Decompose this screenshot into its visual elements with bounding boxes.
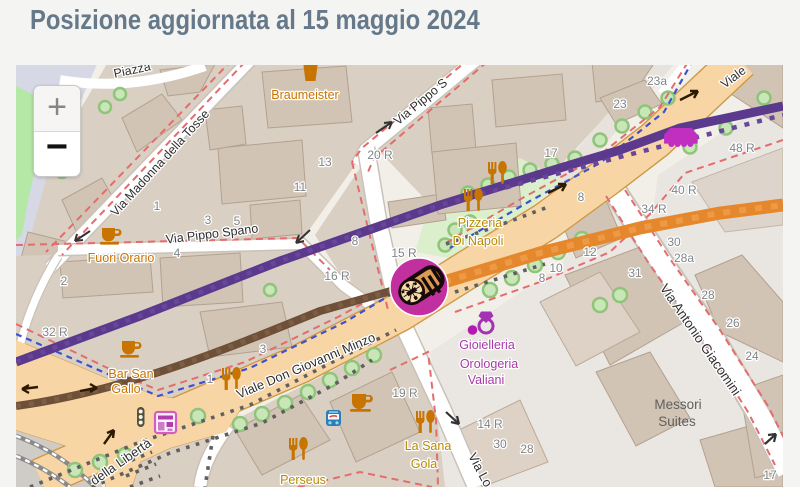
svg-text:20 R: 20 R [367, 148, 393, 162]
svg-text:16 R: 16 R [324, 269, 350, 283]
svg-text:28a: 28a [674, 251, 694, 265]
svg-text:Gallo: Gallo [111, 382, 140, 396]
svg-text:3: 3 [205, 213, 212, 227]
svg-text:31: 31 [628, 266, 642, 280]
svg-text:8: 8 [352, 234, 359, 248]
svg-text:Bar San: Bar San [108, 367, 153, 381]
svg-text:12: 12 [583, 245, 597, 259]
svg-text:Orologeria: Orologeria [460, 357, 518, 371]
svg-text:30: 30 [667, 235, 681, 249]
svg-text:34 R: 34 R [641, 202, 667, 216]
svg-text:4: 4 [174, 246, 181, 260]
svg-text:Messori: Messori [654, 397, 701, 412]
svg-text:La Sana: La Sana [405, 439, 452, 453]
svg-text:19 R: 19 R [392, 386, 418, 400]
svg-text:28: 28 [701, 288, 715, 302]
svg-text:Braumeister: Braumeister [271, 88, 338, 102]
svg-text:Gola: Gola [411, 457, 437, 471]
svg-text:48 R: 48 R [729, 141, 755, 155]
svg-text:26: 26 [726, 316, 740, 330]
svg-text:Valiani: Valiani [468, 373, 505, 387]
svg-text:1: 1 [207, 372, 214, 386]
svg-text:32 R: 32 R [42, 325, 68, 339]
svg-text:8: 8 [539, 271, 546, 285]
svg-text:10: 10 [549, 261, 563, 275]
svg-text:Pizzeria: Pizzeria [458, 216, 503, 230]
svg-text:14 R: 14 R [477, 417, 503, 431]
svg-text:30: 30 [493, 437, 507, 451]
svg-text:Perseus: Perseus [280, 473, 326, 487]
svg-text:28: 28 [520, 442, 534, 456]
svg-text:Di Napoli: Di Napoli [453, 234, 504, 248]
svg-text:23a: 23a [647, 74, 667, 88]
svg-text:11: 11 [294, 180, 307, 194]
svg-text:17: 17 [544, 146, 558, 160]
svg-text:17: 17 [763, 468, 777, 482]
svg-text:24: 24 [745, 349, 759, 363]
svg-text:40 R: 40 R [671, 183, 697, 197]
svg-text:3: 3 [260, 342, 267, 356]
svg-text:1: 1 [154, 199, 161, 213]
svg-text:23: 23 [613, 97, 627, 111]
svg-text:Suites: Suites [658, 414, 696, 429]
svg-text:13: 13 [318, 155, 332, 169]
svg-text:Gioielleria: Gioielleria [459, 338, 515, 352]
svg-text:Fuori Orario: Fuori Orario [88, 251, 155, 265]
svg-text:8: 8 [578, 190, 585, 204]
svg-text:2: 2 [61, 274, 68, 288]
